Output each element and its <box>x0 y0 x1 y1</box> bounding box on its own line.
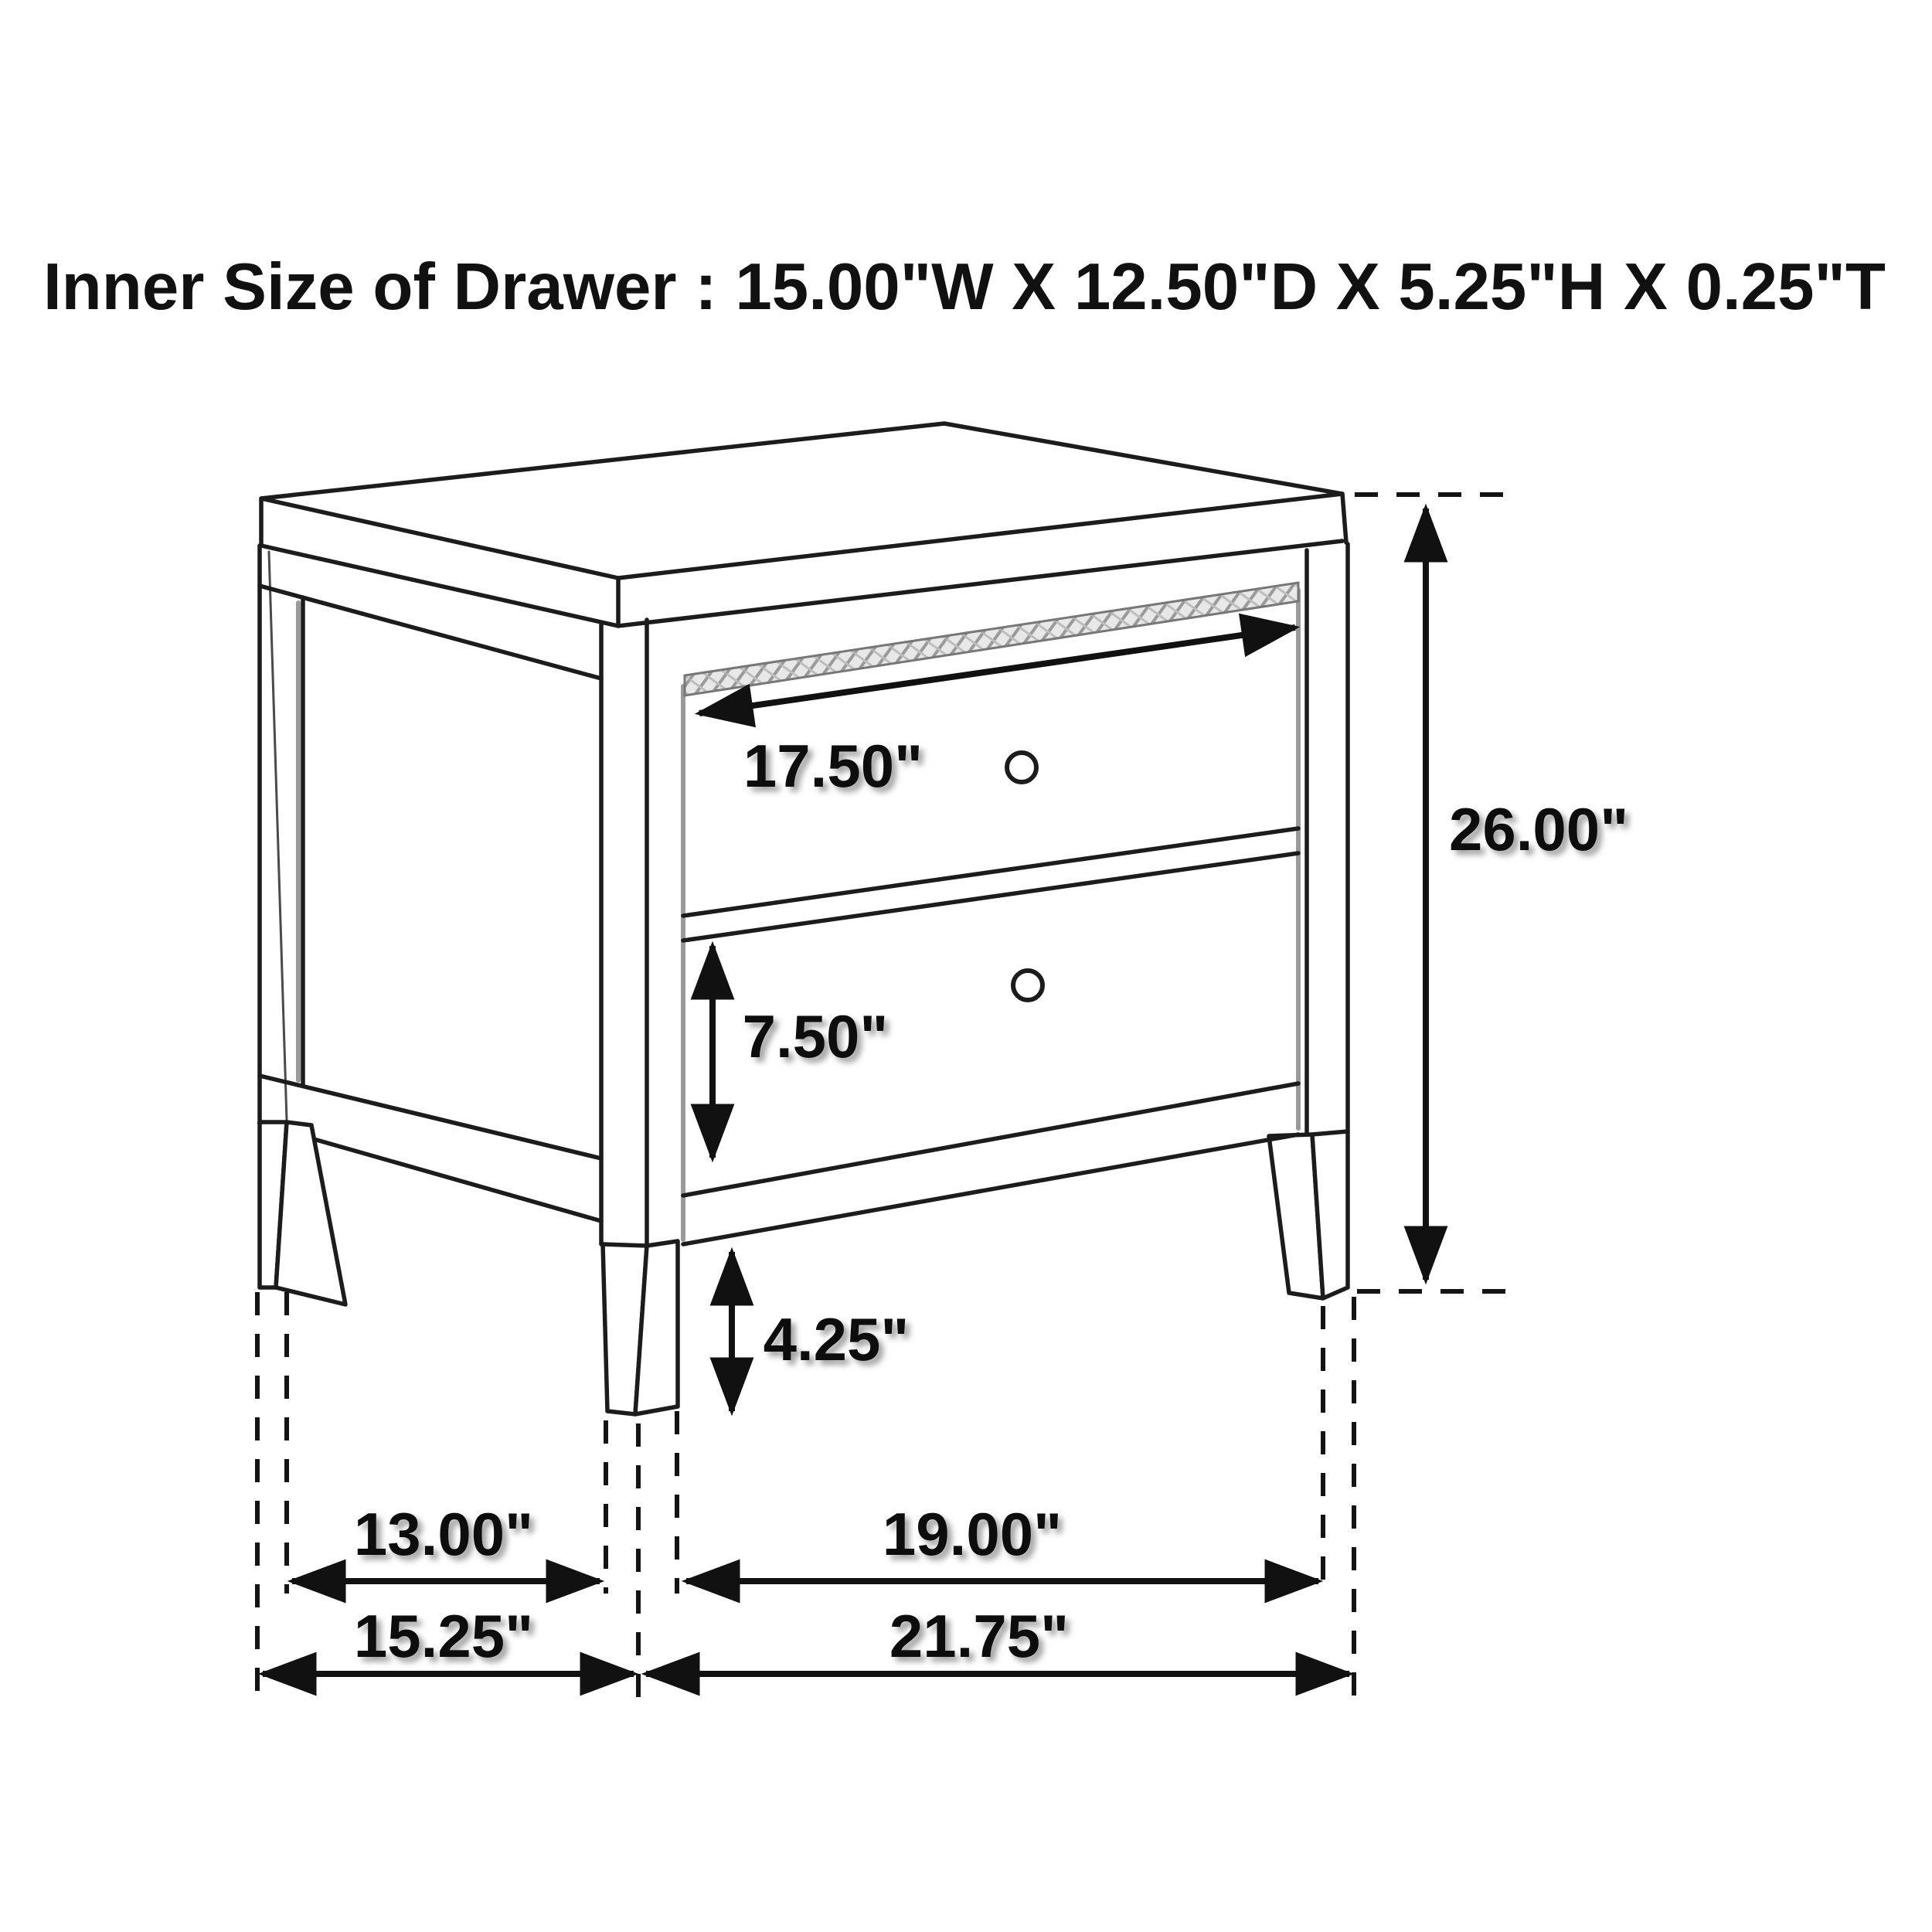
dim-label-front-inner-span: 19.00" <box>883 1500 1062 1568</box>
dim-label-bottom-drawer-height: 7.50" <box>743 1002 889 1070</box>
dim-label-side-inner-span: 13.00" <box>354 1500 533 1568</box>
dim-label-overall-width: 21.75" <box>889 1602 1069 1670</box>
top-drawer-knob <box>1007 753 1036 782</box>
dim-label-overall-height: 26.00" <box>1449 795 1628 863</box>
page-title: Inner Size of Drawer : 15.00"W X 12.50"D… <box>43 250 1886 324</box>
bottom-drawer-knob <box>1013 971 1043 1000</box>
page: Inner Size of Drawer : 15.00"W X 12.50"D… <box>0 0 1932 1932</box>
dim-label-leg-height: 4.25" <box>764 1305 910 1373</box>
dimension-diagram: Inner Size of Drawer : 15.00"W X 12.50"D… <box>0 0 1932 1932</box>
dim-label-overall-depth: 15.25" <box>354 1602 533 1670</box>
dim-label-drawer-width: 17.50" <box>743 732 923 800</box>
